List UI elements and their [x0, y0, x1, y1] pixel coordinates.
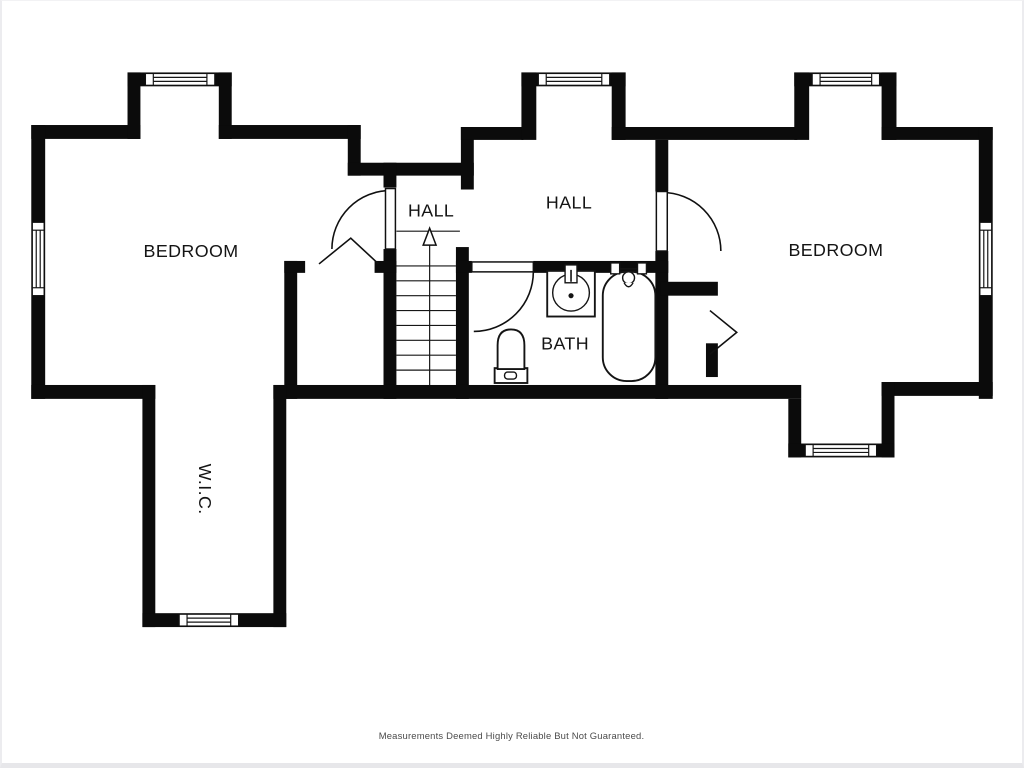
- door-swing-icon-right-bedroom: [656, 192, 720, 252]
- room-label-bedroom-left: BEDROOM: [144, 241, 239, 261]
- floor-plan-drawing: BEDROOM BEDROOM HALL HALL BATH W.I.C. Me…: [2, 1, 1021, 763]
- door-swing-icon-left-bedroom: [332, 189, 396, 250]
- window-icon-left-wall: [32, 222, 44, 295]
- window-icon-bay-center: [538, 73, 609, 85]
- room-label-hall-upper: HALL: [408, 200, 454, 220]
- window-icon-bumpout: [805, 445, 876, 457]
- window-icon-bay-right: [812, 73, 879, 85]
- bathtub-icon: [603, 263, 656, 381]
- bifold-door-icon-closet: [319, 238, 379, 264]
- floor-plan-canvas: BEDROOM BEDROOM HALL HALL BATH W.I.C. Me…: [0, 0, 1024, 768]
- room-label-bedroom-right: BEDROOM: [788, 240, 883, 260]
- door-swing-icon-bath: [472, 262, 534, 331]
- window-icon-wic: [179, 614, 239, 626]
- room-label-hall-main: HALL: [546, 192, 592, 212]
- window-icon-bay-left: [145, 73, 214, 85]
- disclaimer-text: Measurements Deemed Highly Reliable But …: [379, 730, 645, 741]
- room-label-wic: W.I.C.: [195, 464, 215, 515]
- staircase-icon: [396, 231, 460, 370]
- room-label-bath: BATH: [541, 333, 589, 353]
- window-icon-right-wall: [980, 222, 992, 295]
- sink-icon: [547, 265, 595, 317]
- stair-direction-arrow-icon: [423, 228, 436, 385]
- toilet-icon: [495, 329, 528, 383]
